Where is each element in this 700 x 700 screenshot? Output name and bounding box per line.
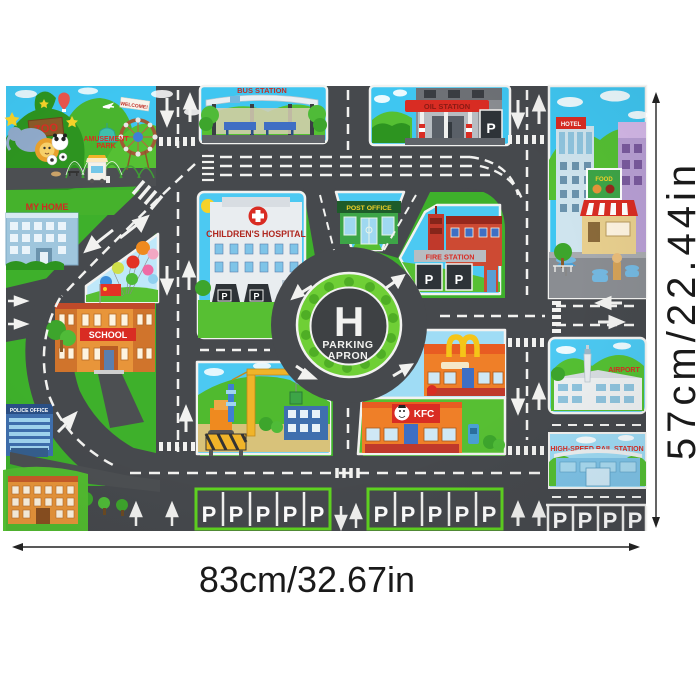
svg-text:83cm/32.67in: 83cm/32.67in	[199, 559, 415, 600]
svg-text:57cm/22.44in: 57cm/22.44in	[660, 160, 700, 460]
